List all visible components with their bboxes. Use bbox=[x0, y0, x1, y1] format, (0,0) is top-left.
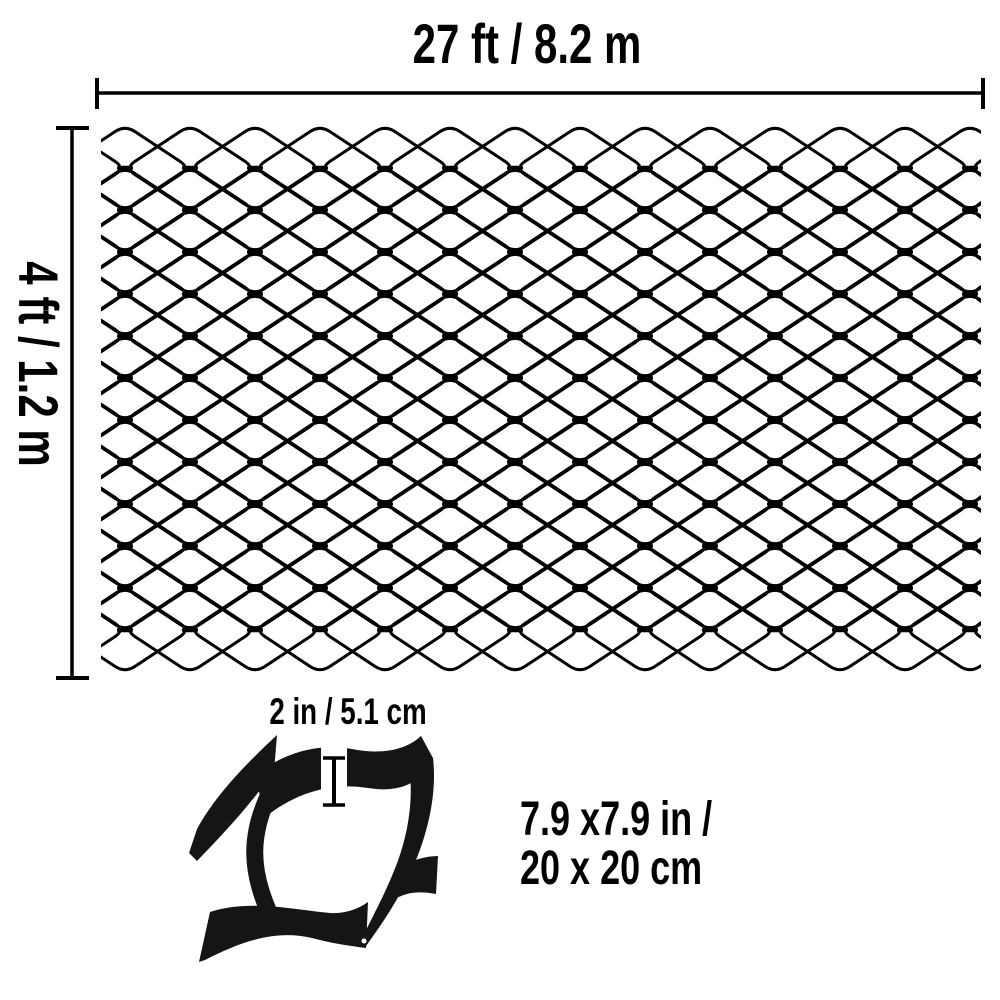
thickness-marker bbox=[321, 746, 347, 814]
geocell-detail-graphic bbox=[189, 735, 438, 962]
product-dimension-diagram: 27 ft / 8.2 m 4 ft / 1.2 m 2 in / 5.1 cm… bbox=[0, 0, 1000, 1000]
cell-depth-label: 2 in / 5.1 cm bbox=[269, 693, 426, 730]
diagram-graphic bbox=[0, 0, 1000, 1000]
cell-size-label: 7.9 x7.9 in / 20 x 20 cm bbox=[520, 795, 712, 893]
top-dimension-line bbox=[97, 78, 983, 109]
geocell-rivet-hole bbox=[362, 939, 367, 944]
geocell-bottom-band bbox=[199, 902, 368, 962]
cell-size-line1: 7.9 x7.9 in / bbox=[520, 795, 712, 844]
cell-size-line2: 20 x 20 cm bbox=[520, 844, 712, 893]
geocell-front-left-strip bbox=[255, 792, 270, 910]
width-dimension-label: 27 ft / 8.2 m bbox=[413, 16, 642, 72]
geogrid-mesh bbox=[0, 128, 1000, 669]
height-dimension-label: 4 ft / 1.2 m bbox=[10, 261, 66, 466]
